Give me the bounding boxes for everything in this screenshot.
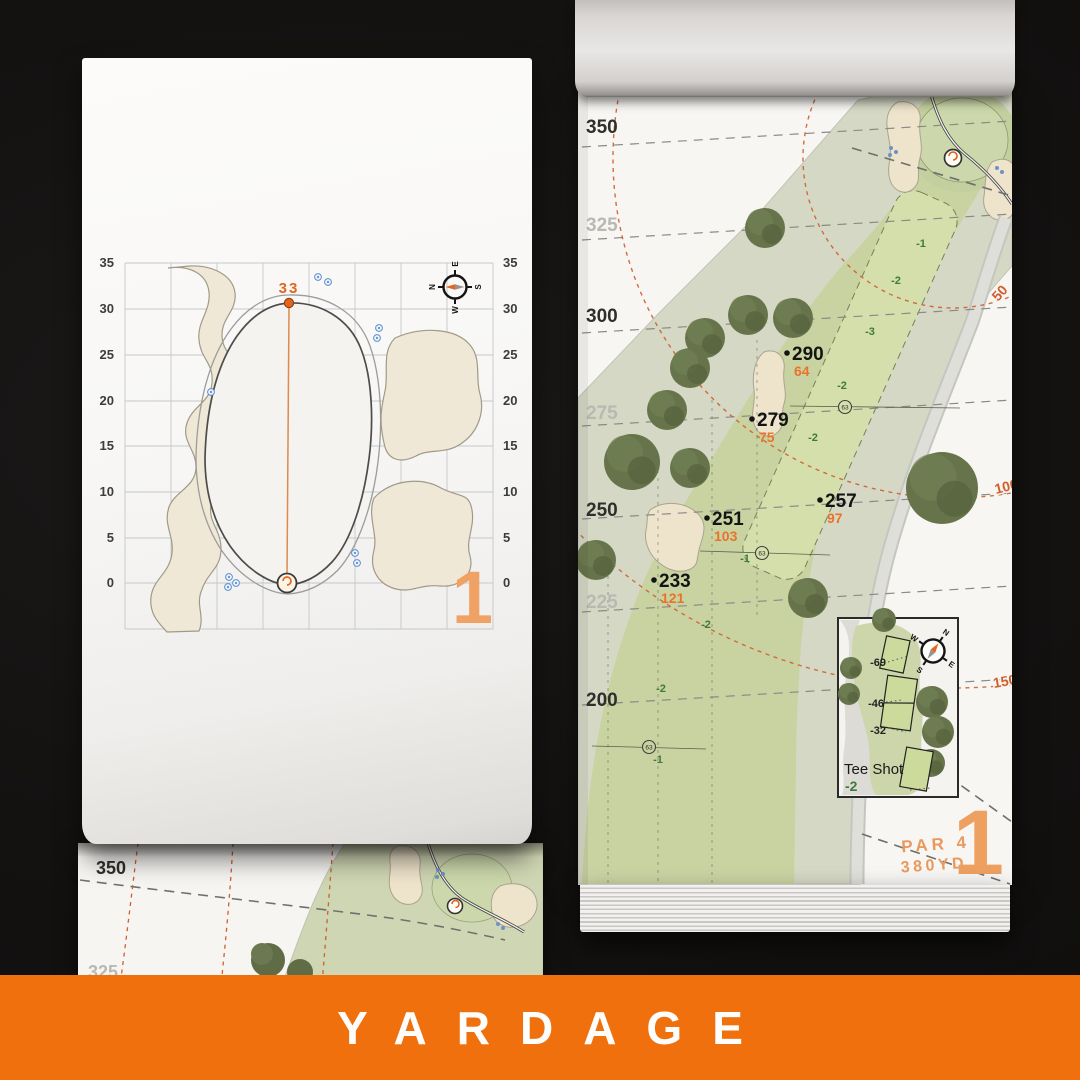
compass-e: E xyxy=(451,261,460,267)
yardline-label: 275 xyxy=(586,403,618,424)
bunker xyxy=(381,330,482,460)
grid-axis-label: 20 xyxy=(503,393,517,408)
grid-axis-label: 20 xyxy=(100,393,114,408)
slope-label: -3 xyxy=(865,326,875,338)
tee-shot-slope: -2 xyxy=(845,778,858,794)
spine-shade xyxy=(578,90,588,885)
tree-icon xyxy=(670,348,710,388)
yardage-book-mockup: 350 325 35 30 25 xyxy=(0,0,1080,1080)
yardline-label: 300 xyxy=(586,306,618,327)
grid-axis-label: 30 xyxy=(503,301,517,316)
left-under-page: 350 325 xyxy=(78,843,543,985)
yardline-label: 200 xyxy=(586,690,618,711)
sprinkler-head: 63 xyxy=(841,405,849,412)
slope-label: -2 xyxy=(837,380,847,392)
tree-icon xyxy=(745,208,785,248)
compass-n: N xyxy=(428,284,437,290)
under-page-map: 350 325 xyxy=(78,843,543,985)
marker-yards: 251 xyxy=(712,509,744,530)
slope-label: -2 xyxy=(808,432,818,444)
marker-yards: 290 xyxy=(792,344,824,365)
grid-axis-label: 0 xyxy=(107,575,114,590)
marker-to-pin: 97 xyxy=(827,510,843,526)
grid-axis-label: 15 xyxy=(100,438,114,453)
slope-label: -1 xyxy=(740,553,750,565)
tree-icon xyxy=(906,452,978,524)
tree-icon xyxy=(840,657,862,679)
arc-labels: 50 100 150 xyxy=(988,282,1012,691)
marker-to-pin: 103 xyxy=(714,528,738,544)
yardline-label: 250 xyxy=(586,500,618,521)
tree-icon xyxy=(788,578,828,618)
tee-shot-title: Tee Shot xyxy=(844,761,904,778)
grid-axis-label: 30 xyxy=(100,301,114,316)
compass-rose-icon: N E S W xyxy=(428,261,483,314)
compass-w: W xyxy=(451,306,460,314)
left-top-page: 35 30 25 20 15 10 5 0 35 30 25 20 15 10 … xyxy=(82,58,532,844)
marker-to-pin: 121 xyxy=(661,590,685,606)
hole-number: 1 xyxy=(953,792,1004,885)
yardline-label: 325 xyxy=(586,215,618,236)
arc-label: 150 xyxy=(992,671,1012,691)
grid-axis-label: 25 xyxy=(100,347,114,362)
tree-icon xyxy=(872,608,896,632)
tree-icon xyxy=(728,295,768,335)
banner: YARDAGE xyxy=(0,975,1080,1080)
grid-axis-label: 0 xyxy=(503,575,510,590)
marker-yards: 233 xyxy=(659,571,691,592)
hole-map: 63 63 63 -1 -2 -3 -2 -2 -1 -2 xyxy=(578,90,1012,885)
grid-axis-label: 35 xyxy=(503,255,517,270)
slope-label: -2 xyxy=(891,275,901,287)
green-detail-grid: 35 30 25 20 15 10 5 0 35 30 25 20 15 10 … xyxy=(82,58,532,844)
marker-to-pin: 64 xyxy=(794,363,810,379)
page-stack xyxy=(580,885,1010,932)
grid-axis-label: 25 xyxy=(503,347,517,362)
cover-fold xyxy=(575,0,1015,97)
slope-label: -2 xyxy=(656,683,666,695)
hole-number: 1 xyxy=(452,556,493,639)
slope-label: -1 xyxy=(653,754,663,766)
banner-label: YARDAGE xyxy=(307,1001,773,1055)
pin-distance-dot xyxy=(284,298,293,307)
tree-icon xyxy=(604,434,660,490)
arc-label: 100 xyxy=(993,476,1012,497)
tee-shot-inset: -69 -46 -32 N E S W xyxy=(838,608,970,797)
carry-label: -69 xyxy=(870,657,886,669)
tree-icon xyxy=(922,716,954,748)
grid-axis-label: 35 xyxy=(100,255,114,270)
tree-icon xyxy=(916,686,948,718)
slope-label: -1 xyxy=(916,238,926,250)
tree-icon xyxy=(838,683,860,705)
pin-distance-label: 33 xyxy=(279,280,300,297)
grid-axis-label: 5 xyxy=(107,530,114,545)
grid-axis-label: 15 xyxy=(503,438,517,453)
tree-icon xyxy=(670,448,710,488)
tree-icon xyxy=(773,298,813,338)
grid-axis-label: 10 xyxy=(100,484,114,499)
grid-axis-label: 10 xyxy=(503,484,517,499)
sprinkler-head: 63 xyxy=(758,551,766,558)
right-page: 63 63 63 -1 -2 -3 -2 -2 -1 -2 xyxy=(578,90,1012,885)
marker-yards: 257 xyxy=(825,491,857,512)
marker-yards: 279 xyxy=(757,410,789,431)
yardline-label: 225 xyxy=(586,592,618,613)
fold-shadow xyxy=(78,843,543,857)
carry-label: -32 xyxy=(870,725,886,737)
yardline-label: 350 xyxy=(586,117,618,138)
yardline-label: 350 xyxy=(96,858,126,878)
grid-axis-label: 5 xyxy=(503,530,510,545)
sprinkler-head: 63 xyxy=(645,745,653,752)
carry-label: -46 xyxy=(868,698,884,710)
marker-to-pin: 75 xyxy=(759,429,775,445)
compass-s: S xyxy=(474,284,483,290)
tree-icon xyxy=(647,390,687,430)
slope-label: -2 xyxy=(701,619,711,631)
